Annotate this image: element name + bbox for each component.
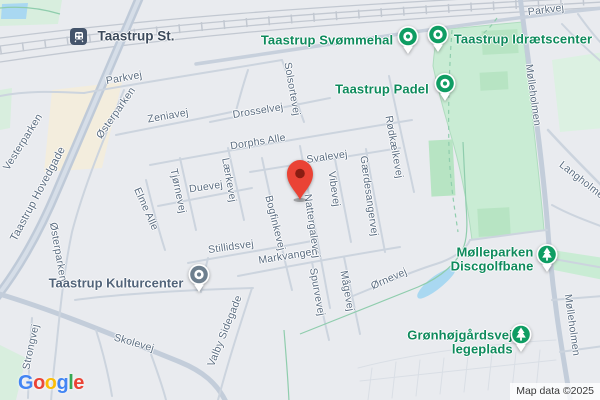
poi-label-line: legeplads xyxy=(452,342,513,357)
poi-pin-kulturcenter[interactable] xyxy=(186,263,212,298)
pond xyxy=(417,267,455,298)
poi-label-legeplads[interactable]: Grønhøjgårdsvej legeplads xyxy=(407,329,513,358)
poi-label-kulturcenter[interactable]: Taastrup Kulturcenter xyxy=(49,276,184,291)
map-attribution: Map data ©2025 xyxy=(510,383,600,400)
poi-label-svommehal[interactable]: Taastrup Svømmehal xyxy=(261,33,393,48)
poi-label-discgolf[interactable]: Mølleparken Discgolfbane xyxy=(451,246,534,275)
logo-letter: g xyxy=(57,372,69,394)
poi-label-line: Mølleparken xyxy=(456,245,533,260)
logo-letter: o xyxy=(33,372,45,394)
google-logo[interactable]: Google xyxy=(18,372,84,395)
logo-letter: G xyxy=(18,372,33,394)
marker-dot xyxy=(295,169,305,179)
poi-pin-legeplads[interactable] xyxy=(508,323,534,358)
poi-pin-padel[interactable] xyxy=(432,72,458,107)
poi-label-line: Grønhøjgårdsvej xyxy=(407,328,513,343)
poi-label-idraetscenter[interactable]: Taastrup Idrætscenter xyxy=(454,32,592,47)
poi-pin-idraetscenter[interactable] xyxy=(425,23,451,58)
poi-pin-discgolf[interactable] xyxy=(534,243,560,278)
station-label[interactable]: Taastrup St. xyxy=(97,29,174,44)
poi-label-padel[interactable]: Taastrup Padel xyxy=(335,82,429,97)
train-station-icon[interactable] xyxy=(70,28,87,45)
basin xyxy=(1,3,28,19)
map-canvas[interactable]: Parkvej Parkvej Zeniavej Drosselvej Sols… xyxy=(0,0,600,400)
destination-marker[interactable] xyxy=(282,155,318,208)
logo-letter: e xyxy=(73,372,84,394)
poi-label-line: Discgolfbane xyxy=(451,259,534,274)
poi-pin-svommehal[interactable] xyxy=(395,25,421,60)
logo-letter: o xyxy=(45,372,57,394)
